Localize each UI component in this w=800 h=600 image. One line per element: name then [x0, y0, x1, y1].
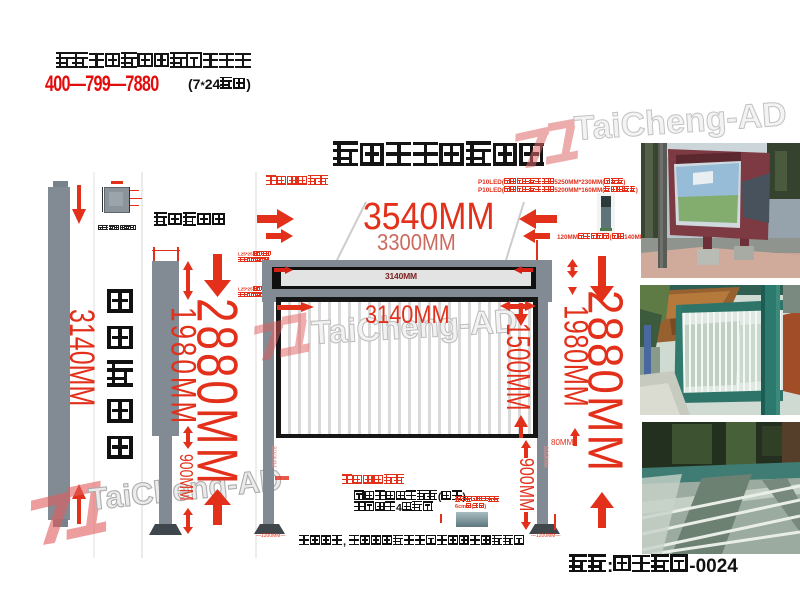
svg-text:TaiCheng-AD: TaiCheng-AD [573, 98, 788, 148]
